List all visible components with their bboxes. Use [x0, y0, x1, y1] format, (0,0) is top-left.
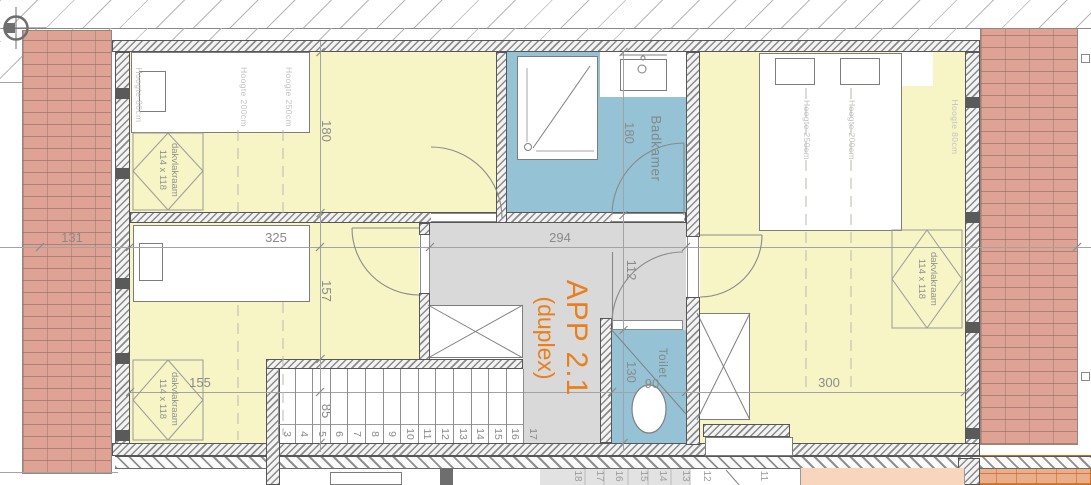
dim-130: 130: [623, 352, 639, 392]
lower-floor-wall-stub: [440, 468, 453, 485]
stair-step-number: 11: [421, 428, 433, 440]
stair-step-number: 15: [492, 428, 504, 440]
dormer-hatch-bedroom-3: [703, 424, 790, 437]
lower-stair-step-number: 12: [700, 470, 712, 482]
wall-bottom: [112, 443, 980, 456]
lower-stair-step-number: 11: [757, 470, 769, 482]
dim-157: 157: [318, 271, 334, 311]
stair-step-number: 6: [333, 428, 345, 440]
stair-step-number: 5: [316, 428, 328, 440]
wall-right-pier: [965, 428, 980, 439]
pillow-left-bedroom-3: [775, 58, 815, 85]
window-marker-top: [1081, 54, 1090, 63]
height-label-lower-floor: Hoogte: [797, 470, 809, 485]
sink: [620, 59, 667, 91]
wall-left-pier: [115, 88, 130, 99]
dim-112: 112: [623, 250, 639, 290]
wall-right-pier: [965, 97, 980, 108]
height-label-200-right: Hoogte 200cm: [846, 91, 858, 169]
dim-180-bathroom: 180: [621, 113, 637, 153]
apartment-type: (duplex): [533, 243, 559, 433]
stair-step-number: 7: [351, 428, 363, 440]
wall-left-pier: [115, 430, 130, 441]
wall-left: [115, 52, 130, 445]
wall-bathroom-east: [686, 52, 700, 237]
shower-tray: [517, 56, 598, 160]
window-marker-bottom: [1081, 372, 1090, 381]
lower-floor-fixture: [330, 472, 402, 485]
stair-step-number: 17: [527, 428, 539, 440]
stair-step-number: 3: [281, 428, 293, 440]
height-label-80-right: Hoogte 80cm: [949, 88, 961, 166]
wall-right: [965, 52, 980, 445]
lower-stair-step-number: 16: [612, 470, 624, 482]
wall-toilet-west: [600, 318, 612, 443]
height-label-250-right: Hoogte 250cm: [801, 91, 813, 169]
dim-90: 90: [638, 376, 666, 392]
shaft-box-hall: [428, 305, 523, 358]
lower-stair-step-number: 14: [656, 470, 668, 482]
wardrobe-bedroom-3: [697, 313, 750, 420]
wall-top: [112, 40, 980, 52]
stair-step-number: 16: [509, 428, 521, 440]
dim-131: 131: [54, 230, 90, 246]
lower-stair-cut: [726, 470, 740, 485]
lower-stair-step-number: 15: [637, 470, 649, 482]
door-opening-bedroom-3: [687, 237, 699, 297]
roof-hatch-left: [0, 41, 22, 83]
skylight-label-bedroom-2: dakvlakraam 114 x 118: [156, 359, 180, 439]
wall-right-pier: [965, 212, 980, 223]
dim-294: 294: [542, 230, 578, 246]
roof-hatch-upper: [0, 0, 1091, 29]
lower-floor-room: [800, 468, 965, 485]
skylight-label-bedroom-1: dakvlakraam 114 x 118: [156, 130, 180, 210]
room-label-bathroom: Badkamer: [649, 103, 664, 195]
wall-bathroom-west: [496, 52, 507, 223]
wall-corridor-west-lower: [419, 293, 430, 369]
brick-wall-left: [22, 30, 112, 474]
wall-stairs-north: [266, 359, 523, 369]
dim-155: 155: [182, 375, 218, 391]
lower-stair-step-number: 18: [571, 470, 583, 482]
height-label-80-left: Hoogte 80cm: [133, 56, 145, 134]
stair-step-number: 13: [457, 428, 469, 440]
skylight-label-bedroom-3: dakvlakraam 114 x 118: [915, 239, 939, 319]
wall-bedroom3-west-lower: [686, 297, 700, 445]
dim-180-left: 180: [318, 111, 334, 151]
stair-step-number: 8: [369, 428, 381, 440]
bedroom-3-low-zone: [900, 52, 933, 86]
apartment-label: APP 2.1 (duplex): [533, 243, 593, 433]
floor-plan: APP 2.1 (duplex) Badkamer Toilet 131 325…: [0, 0, 1091, 485]
lower-stair-step-number: 13: [679, 470, 691, 482]
pillow-right-bedroom-3: [840, 58, 880, 85]
stair-step-number: 4: [298, 428, 310, 440]
pillow-bedroom-2: [139, 243, 163, 281]
height-label-250-left: Hoogte 250cm: [283, 58, 295, 136]
apartment-name: APP 2.1: [559, 243, 593, 433]
dim-300: 300: [811, 375, 847, 391]
door-opening-toilet: [612, 320, 683, 330]
stair-step-number: 12: [439, 428, 451, 440]
stair-step-number: 9: [386, 428, 398, 440]
door-opening-bedroom-2: [420, 235, 430, 293]
dormer-sill-bedroom-3: [705, 437, 793, 456]
stair-step-number: 10: [404, 428, 416, 440]
wall-left-pier: [115, 278, 130, 289]
lower-stair-step-number: 17: [593, 470, 605, 482]
wall-left-pier: [115, 168, 130, 179]
stair-step-number: 14: [474, 428, 486, 440]
wall-bedroom1-south: [130, 212, 686, 223]
height-label-200-left: Hoogte 200cm: [238, 58, 250, 136]
brick-wall-right: [980, 28, 1078, 445]
wall-right-pier: [965, 322, 980, 333]
door-opening-bedroom-1: [431, 213, 504, 222]
height-label-lower-floor: Hoogte: [842, 470, 854, 485]
wall-left-pier: [115, 353, 130, 364]
wall-corridor-west-upper: [419, 223, 430, 235]
dim-325: 325: [258, 230, 294, 246]
door-opening-bathroom: [612, 213, 684, 222]
